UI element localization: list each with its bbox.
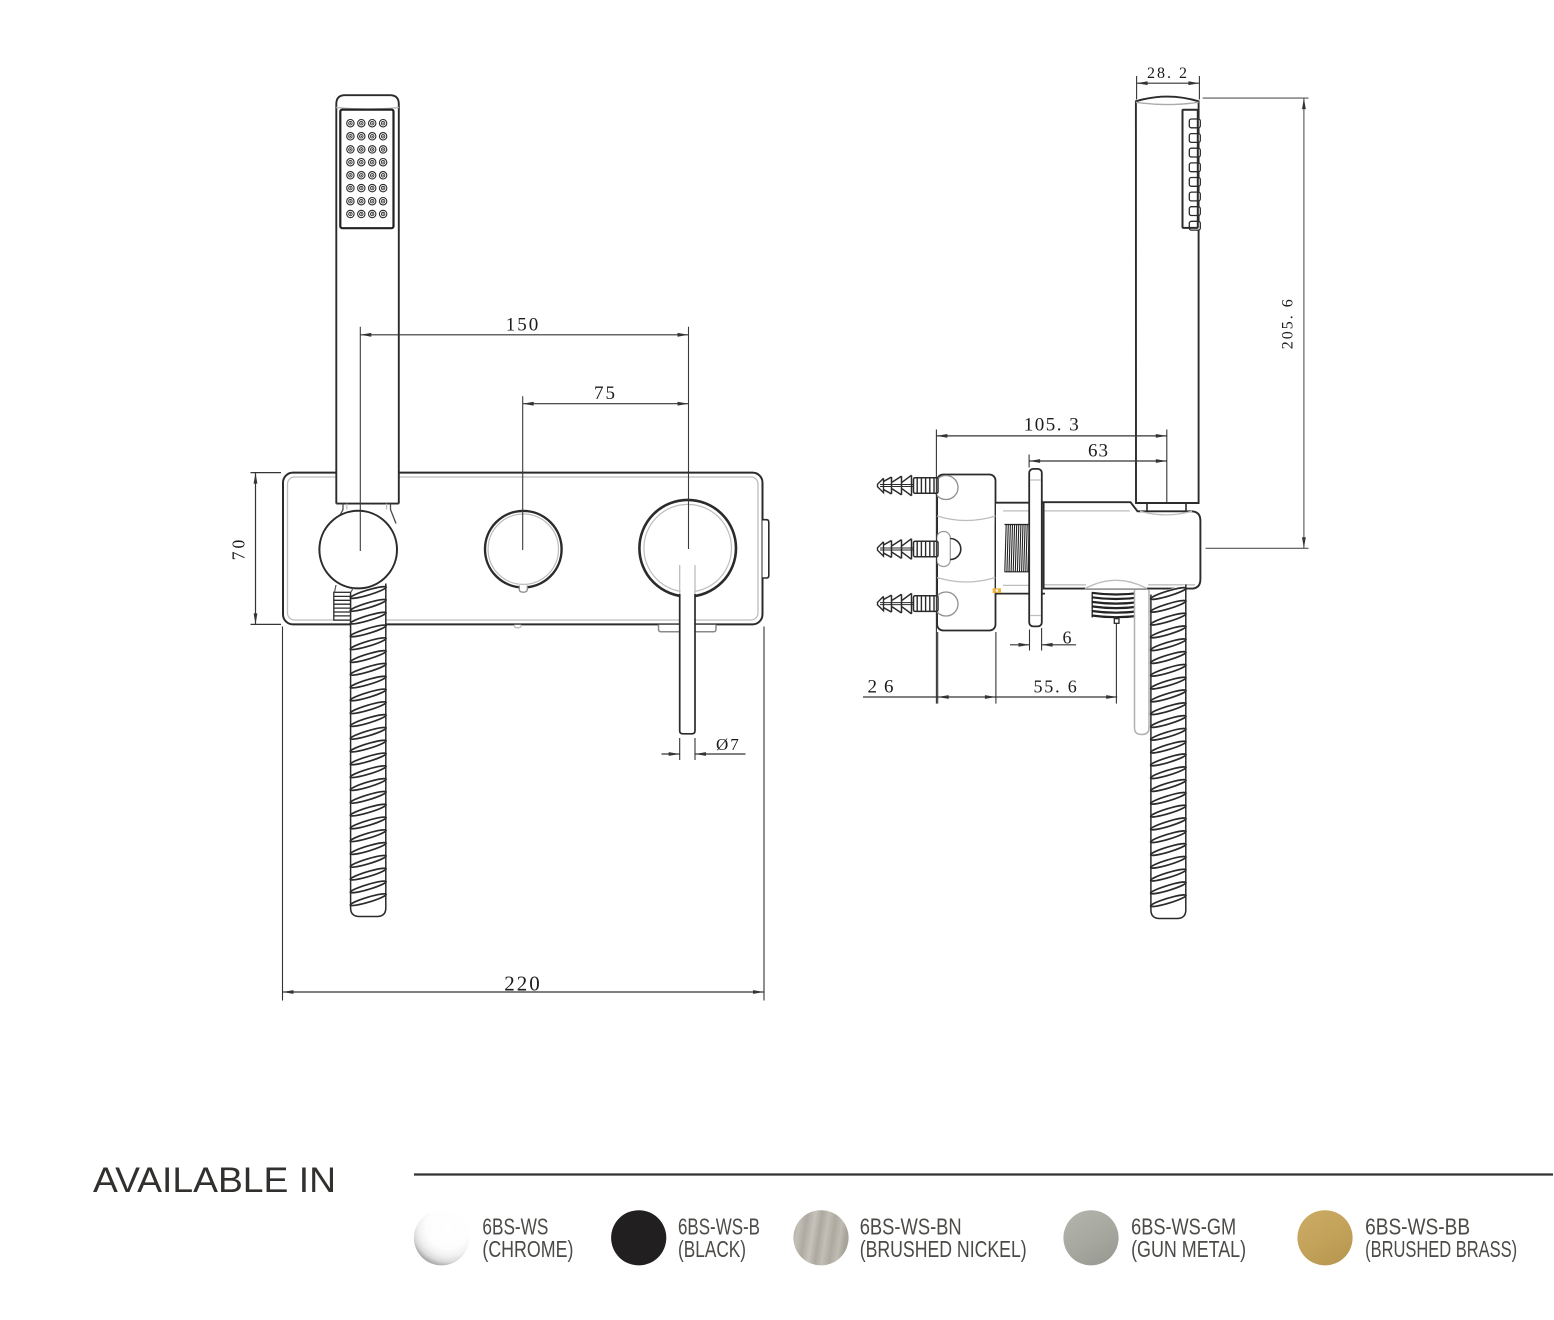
svg-text:(BRUSHED NICKEL): (BRUSHED NICKEL) xyxy=(860,1236,1027,1262)
svg-text:(BRUSHED BRASS): (BRUSHED BRASS) xyxy=(1365,1236,1517,1262)
svg-text:150: 150 xyxy=(506,315,541,336)
svg-text:26: 26 xyxy=(868,676,901,697)
svg-text:55. 6: 55. 6 xyxy=(1034,676,1079,696)
svg-text:Ø7: Ø7 xyxy=(716,735,741,754)
svg-text:(GUN METAL): (GUN METAL) xyxy=(1131,1236,1246,1262)
svg-text:AVAILABLE IN: AVAILABLE IN xyxy=(93,1161,336,1200)
svg-text:105. 3: 105. 3 xyxy=(1024,415,1081,436)
svg-text:(CHROME): (CHROME) xyxy=(482,1236,573,1262)
svg-text:28. 2: 28. 2 xyxy=(1147,65,1189,82)
svg-text:75: 75 xyxy=(594,383,617,404)
svg-text:6: 6 xyxy=(1063,627,1072,647)
svg-text:205. 6: 205. 6 xyxy=(1279,297,1296,349)
svg-text:220: 220 xyxy=(504,972,542,996)
svg-text:(BLACK): (BLACK) xyxy=(678,1236,746,1262)
svg-text:63: 63 xyxy=(1088,440,1109,461)
svg-text:70: 70 xyxy=(229,537,249,561)
